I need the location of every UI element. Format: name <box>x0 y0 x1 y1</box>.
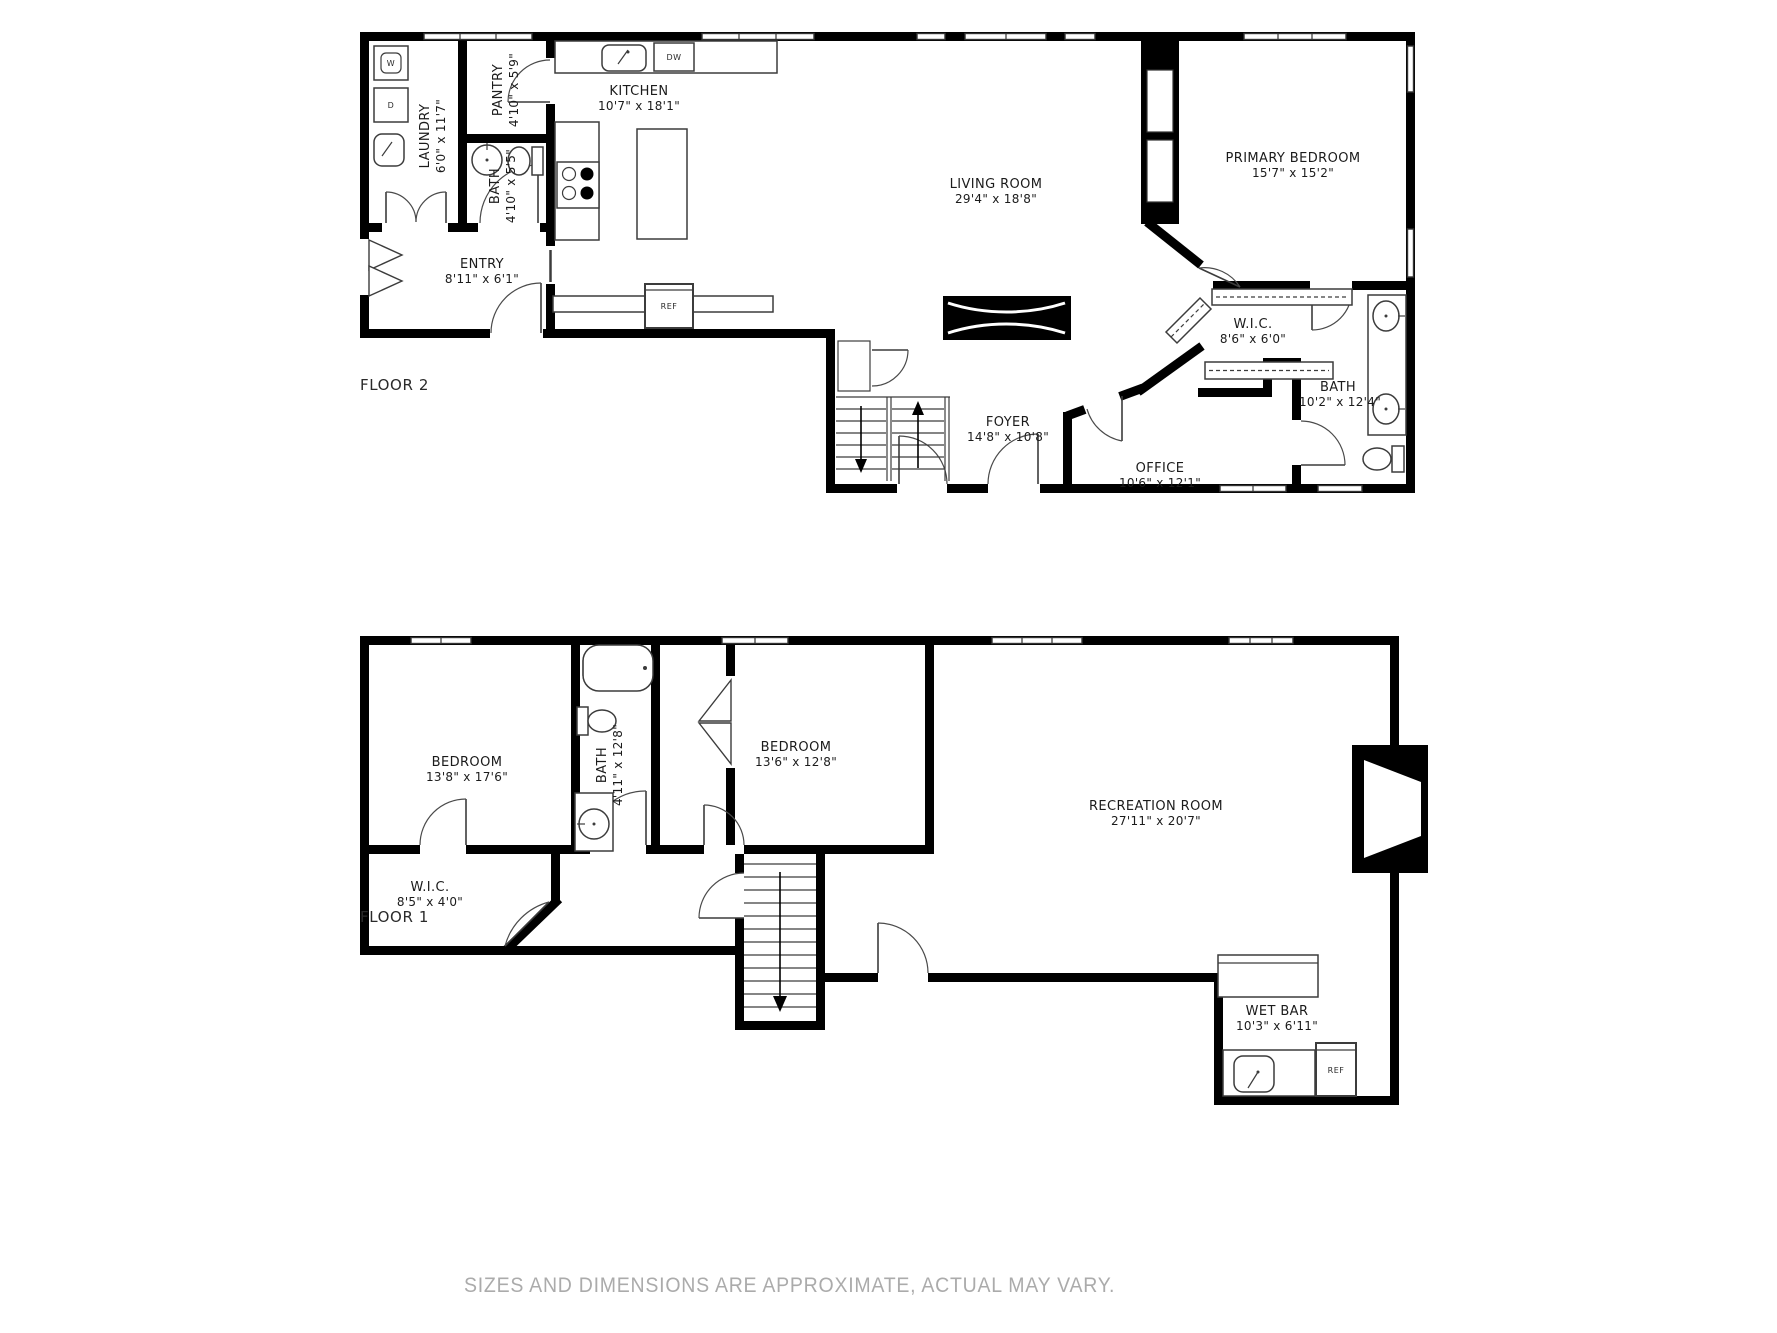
room-dims-bath-floor1: 4'11" x 12'8" <box>611 724 625 806</box>
floor2-plan: LAUNDRY 6'0" x 11'7" PANTRY 4'10" x 5'9"… <box>360 32 1415 493</box>
room-label-bedroom1: BEDROOM <box>432 755 503 770</box>
room-dims-primary: 15'7" x 15'2" <box>1252 166 1334 180</box>
staircase-floor1 <box>744 864 816 1012</box>
bathtub-icon <box>583 645 653 691</box>
floor1-walls <box>360 636 1399 1105</box>
room-dims-kitchen: 10'7" x 18'1" <box>598 99 680 113</box>
room-dims-recreation: 27'11" x 20'7" <box>1111 814 1201 828</box>
kitchen-sink-icon <box>602 45 646 71</box>
room-dims-bedroom2: 13'6" x 12'8" <box>755 755 837 769</box>
primary-toilet-icon <box>1363 446 1404 472</box>
room-dims-primarybath: 10'2" x 12'4" <box>1299 395 1381 409</box>
fridge-label-floor2: REF <box>661 302 678 311</box>
floorplan-canvas: LAUNDRY 6'0" x 11'7" PANTRY 4'10" x 5'9"… <box>0 0 1777 1333</box>
room-label-living: LIVING ROOM <box>950 177 1043 192</box>
floorplan-page: LAUNDRY 6'0" x 11'7" PANTRY 4'10" x 5'9"… <box>0 0 1777 1333</box>
room-dims-wic2: 8'6" x 6'0" <box>1220 332 1286 346</box>
room-dims-pantry: 4'10" x 5'9" <box>507 53 521 127</box>
room-label-kitchen: KITCHEN <box>609 84 668 99</box>
room-label-entry: ENTRY <box>460 257 504 272</box>
room-dims-laundry: 6'0" x 11'7" <box>434 99 448 173</box>
room-label-wetbar: WET BAR <box>1246 1004 1309 1019</box>
floor2-labels: LAUNDRY 6'0" x 11'7" PANTRY 4'10" x 5'9"… <box>387 53 1381 490</box>
room-dims-entry: 8'11" x 6'1" <box>445 272 519 286</box>
floor2-fixtures <box>374 41 1406 481</box>
room-dims-bedroom1: 13'8" x 17'6" <box>426 770 508 784</box>
room-dims-wetbar: 10'3" x 6'11" <box>1236 1019 1318 1033</box>
floor1-doors <box>420 680 928 973</box>
floor1-plan: BEDROOM 13'8" x 17'6" BATH 4'11" x 12'8"… <box>360 636 1428 1105</box>
room-dims-office: 10'6" x 12'1" <box>1119 476 1201 490</box>
dishwasher-label: DW <box>666 53 681 62</box>
wet-bar-sink-icon <box>1234 1056 1274 1092</box>
bath1-sink-icon <box>575 793 613 851</box>
staircase-floor2 <box>836 341 950 481</box>
room-label-bedroom2: BEDROOM <box>761 740 832 755</box>
tv-media-wall <box>1352 745 1428 873</box>
room-dims-living: 29'4" x 18'8" <box>955 192 1037 206</box>
floor1-labels: BEDROOM 13'8" x 17'6" BATH 4'11" x 12'8"… <box>397 724 1344 1075</box>
dryer-label: D <box>388 101 395 110</box>
room-label-pantry: PANTRY <box>491 64 506 116</box>
disclaimer-text: SIZES AND DIMENSIONS ARE APPROXIMATE, AC… <box>464 1274 1115 1297</box>
room-label-laundry: LAUNDRY <box>418 104 433 169</box>
floor1-door-gaps <box>420 676 928 982</box>
floor2-title: FLOOR 2 <box>360 376 429 394</box>
room-label-primary: PRIMARY BEDROOM <box>1226 151 1361 166</box>
room-label-wic1: W.I.C. <box>410 880 449 895</box>
fridge-label-floor1: REF <box>1328 1066 1345 1075</box>
room-label-primarybath: BATH <box>1320 380 1356 395</box>
kitchen-island <box>637 129 687 239</box>
room-label-wic2: W.I.C. <box>1233 317 1272 332</box>
room-dims-foyer: 14'8" x 10'8" <box>967 430 1049 444</box>
room-dims-wic1: 8'5" x 4'0" <box>397 895 463 909</box>
cooktop-icon <box>557 162 599 208</box>
room-label-foyer: FOYER <box>986 415 1030 430</box>
floor1-title: FLOOR 1 <box>360 908 429 926</box>
room-label-bath2: BATH <box>488 168 503 204</box>
room-dims-bath2: 4'10" x 5'5" <box>504 149 518 223</box>
room-label-bath-floor1: BATH <box>595 747 610 783</box>
primary-vanity <box>1368 295 1406 435</box>
laundry-sink-icon <box>374 134 404 166</box>
room-label-recreation: RECREATION ROOM <box>1089 799 1223 814</box>
washer-label: W <box>387 59 395 68</box>
entry-double-door-icon <box>369 240 402 270</box>
room-label-office: OFFICE <box>1136 461 1185 476</box>
sofa <box>943 296 1071 340</box>
